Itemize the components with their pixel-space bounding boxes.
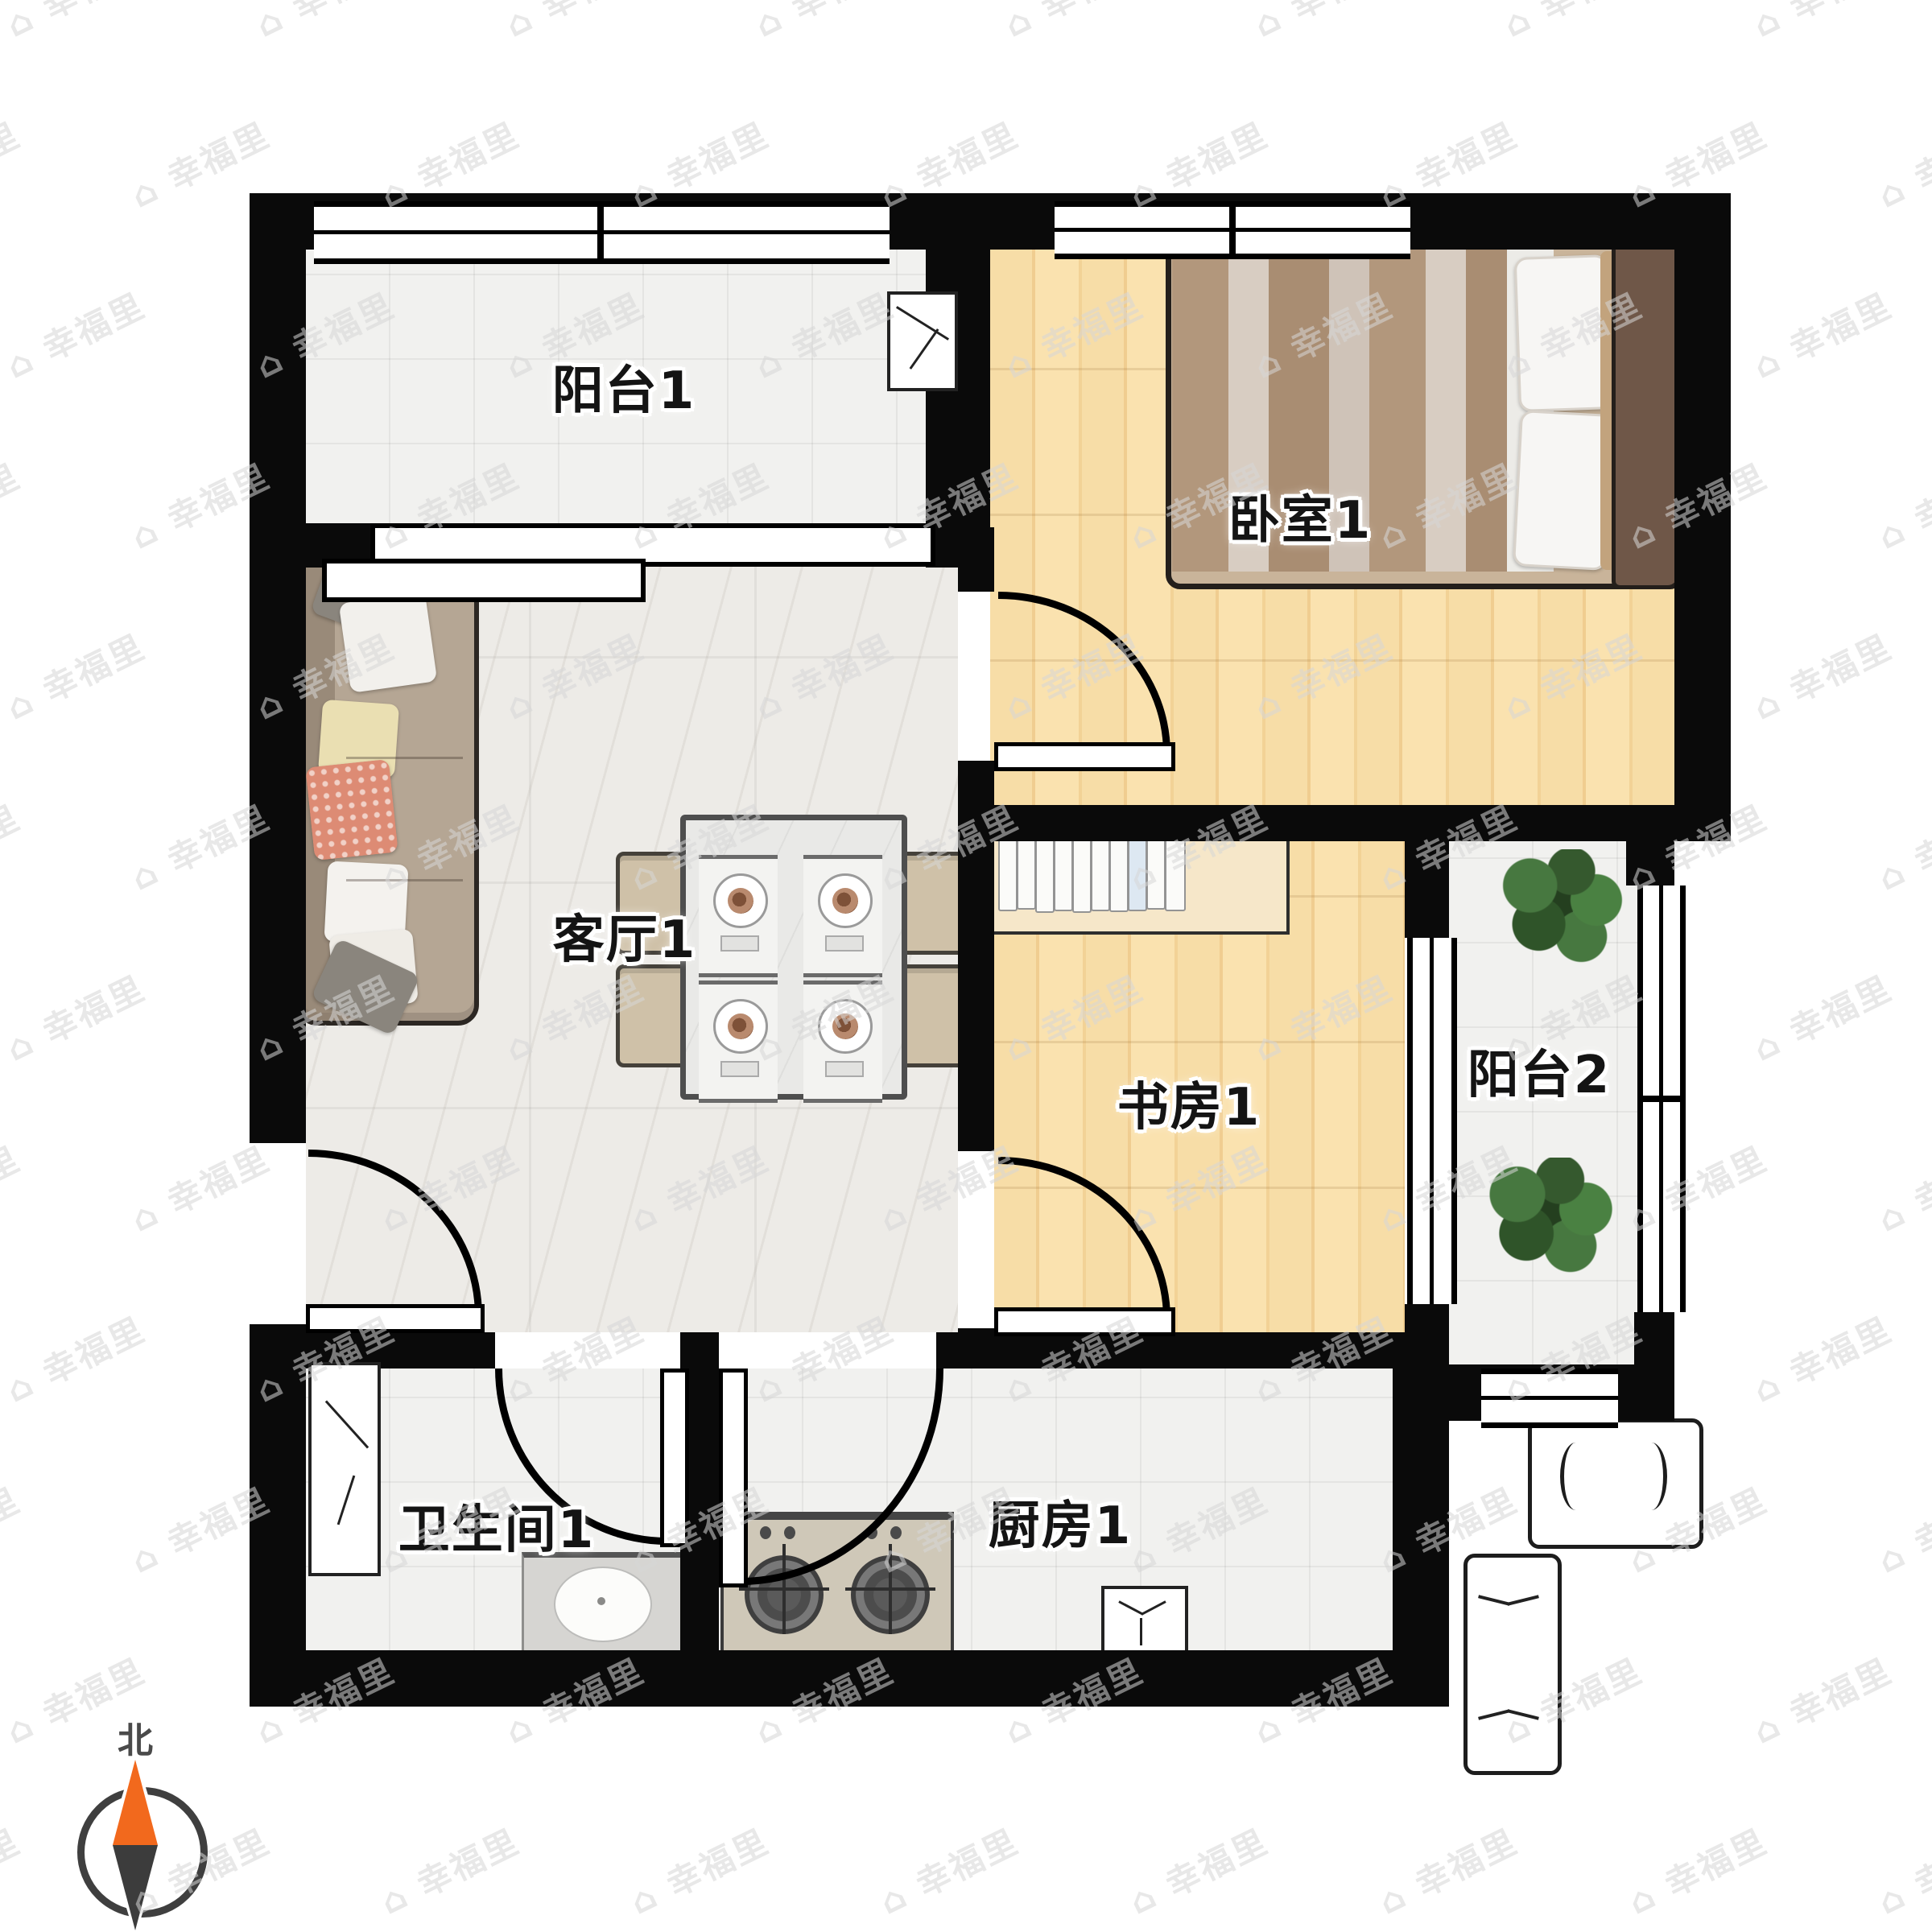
wall-left-lower <box>250 1324 306 1707</box>
room-label-bedroom-1: 卧室1 <box>1228 479 1373 553</box>
plant-icon <box>1499 849 1624 970</box>
sofa-seat-line <box>346 879 463 881</box>
balcony-living-sliding-panel-front <box>322 559 646 602</box>
window-post <box>597 201 604 264</box>
watermark-text: ⌂ 幸福里 <box>1744 1302 1900 1412</box>
watermark-text: ⌂ 幸福里 <box>0 620 153 729</box>
compass-needle-south <box>113 1845 158 1930</box>
window-post <box>1637 1096 1686 1102</box>
wall-living-right-2 <box>958 761 994 1151</box>
compass-north-label: 北 <box>118 1711 153 1763</box>
window-pane-line <box>1481 1396 1618 1400</box>
book-icon <box>1054 836 1073 911</box>
wall-living-right-1 <box>958 527 994 592</box>
compass-needle-north <box>113 1760 158 1845</box>
room-label-balcony-2: 阳台2 <box>1468 1034 1612 1108</box>
watermark-text: ⌂ 幸福里 <box>621 1814 777 1924</box>
watermark-text: ⌂ 幸福里 <box>1619 1814 1775 1924</box>
fixture-line <box>1140 1618 1142 1645</box>
washer-mark <box>1636 1443 1667 1510</box>
kitchen-fixture <box>1101 1586 1188 1655</box>
sofa-pillow-coral <box>305 759 398 861</box>
watermark-text: ⌂ 幸福里 <box>745 0 902 47</box>
wall-bedroom-bottom <box>994 805 1731 841</box>
food-icon <box>728 888 753 914</box>
watermark-text: ⌂ 幸福里 <box>1494 0 1650 47</box>
watermark-text: ⌂ 幸福里 <box>1369 1814 1525 1924</box>
watermark-text: ⌂ 幸福里 <box>0 961 153 1071</box>
plate-icon <box>713 999 768 1054</box>
bed-headboard <box>1612 237 1681 589</box>
wall-study-balcony2-top <box>1405 841 1449 938</box>
napkin-icon <box>720 935 759 952</box>
watermark-text: ⌂ 幸福里 <box>1868 1473 1932 1583</box>
wall-left-upper <box>250 193 306 1143</box>
wall-living-bottom-2 <box>680 1332 719 1368</box>
watermark-text: ⌂ 幸福里 <box>1868 1814 1932 1924</box>
watermark-text: ⌂ 幸福里 <box>1120 1814 1276 1924</box>
window-post <box>1229 201 1236 259</box>
bathroom-cabinet <box>308 1362 381 1576</box>
watermark-text: ⌂ 幸福里 <box>0 1302 153 1412</box>
watermark-text: ⌂ 幸福里 <box>0 1473 28 1583</box>
room-label-living-room: 客厅1 <box>553 898 697 972</box>
study-door-leaf <box>994 1307 1175 1336</box>
entry-door-leaf <box>306 1304 485 1333</box>
room-label-bathroom-1: 卫生间1 <box>398 1488 596 1563</box>
book-icon <box>1146 837 1166 910</box>
plant-icon <box>1485 1158 1614 1280</box>
water-heater <box>1463 1554 1562 1775</box>
wall-balcony2-corner-top <box>1626 841 1674 885</box>
watermark-text: ⌂ 幸福里 <box>1744 279 1900 388</box>
food-icon <box>832 888 858 914</box>
room-label-kitchen-1: 厨房1 <box>989 1484 1133 1558</box>
book-icon <box>1165 831 1186 911</box>
book-icon <box>1091 837 1110 911</box>
watermark-text: ⌂ 幸福里 <box>0 0 153 47</box>
bed-pillow <box>1513 410 1614 571</box>
watermark-text: ⌂ 幸福里 <box>246 0 402 47</box>
watermark-text: ⌂ 幸福里 <box>122 1132 278 1241</box>
book-icon <box>1128 834 1147 911</box>
sofa-pillow-white <box>339 592 438 693</box>
bathroom-door-leaf <box>660 1368 689 1547</box>
balcony-1-window <box>314 201 890 264</box>
watermark-text: ⌂ 幸福里 <box>0 449 28 559</box>
watermark-text: ⌂ 幸福里 <box>1868 449 1932 559</box>
wall-living-bottom-3 <box>936 1332 1449 1368</box>
watermark-text: ⌂ 幸福里 <box>1868 791 1932 900</box>
book-icon <box>998 831 1018 911</box>
book-icon <box>1109 829 1129 912</box>
wall-bottom <box>250 1650 1449 1707</box>
washing-machine <box>1528 1418 1703 1549</box>
food-icon <box>832 1013 858 1039</box>
book-icon <box>1035 829 1055 913</box>
bedroom-1-window <box>1055 201 1410 259</box>
watermark-text: ⌂ 幸福里 <box>870 1814 1026 1924</box>
bedroom-door-leaf <box>994 742 1175 771</box>
watermark-text: ⌂ 幸福里 <box>1868 1132 1932 1241</box>
bed-pillow <box>1514 254 1613 412</box>
watermark-text: ⌂ 幸福里 <box>1245 0 1401 47</box>
watermark-text: ⌂ 幸福里 <box>0 279 153 388</box>
watermark-text: ⌂ 幸福里 <box>1744 1644 1900 1753</box>
watermark-text: ⌂ 幸福里 <box>0 1132 28 1241</box>
study-balcony2-window <box>1407 938 1457 1304</box>
room-label-study-1: 书房1 <box>1117 1066 1261 1140</box>
napkin-icon <box>825 1061 864 1077</box>
watermark-text: ⌂ 幸福里 <box>371 1814 527 1924</box>
watermark-text: ⌂ 幸福里 <box>1868 108 1932 217</box>
burner-cross <box>889 1544 892 1634</box>
wall-right-bedroom <box>1674 193 1731 841</box>
floor-plan-canvas: 阳台1 卧室1 客厅1 书房1 阳台2 卫生间1 厨房1 北 ⌂ 幸福里⌂ 幸福… <box>0 0 1932 1932</box>
wall-kitchen-right <box>1393 1368 1449 1707</box>
plate-icon <box>713 873 768 928</box>
kitchen-door-leaf <box>719 1368 748 1587</box>
napkin-icon <box>720 1061 759 1077</box>
wall-balcony2-right-lower <box>1634 1312 1674 1421</box>
window-pane-line <box>1430 938 1434 1304</box>
food-icon <box>728 1013 753 1039</box>
sink-drain <box>597 1597 605 1605</box>
sofa-seat-line <box>346 757 463 759</box>
stove-knob <box>890 1526 902 1539</box>
washer-mark <box>1560 1443 1591 1510</box>
watermark-text: ⌂ 幸福里 <box>0 1814 28 1924</box>
book-icon <box>1072 832 1092 913</box>
watermark-text: ⌂ 幸福里 <box>0 791 28 900</box>
balcony-2-right-window <box>1637 885 1686 1312</box>
plate-icon <box>818 999 873 1054</box>
watermark-text: ⌂ 幸福里 <box>1744 961 1900 1071</box>
watermark-text: ⌂ 幸福里 <box>995 0 1151 47</box>
balcony-2-bottom-window <box>1481 1368 1618 1428</box>
napkin-icon <box>825 935 864 952</box>
book-icon <box>1017 837 1036 910</box>
plate-icon <box>818 873 873 928</box>
watermark-text: ⌂ 幸福里 <box>1744 620 1900 729</box>
watermark-text: ⌂ 幸福里 <box>1744 0 1900 47</box>
room-label-balcony-1: 阳台1 <box>552 349 696 423</box>
watermark-text: ⌂ 幸福里 <box>496 0 652 47</box>
watermark-text: ⌂ 幸福里 <box>0 108 28 217</box>
